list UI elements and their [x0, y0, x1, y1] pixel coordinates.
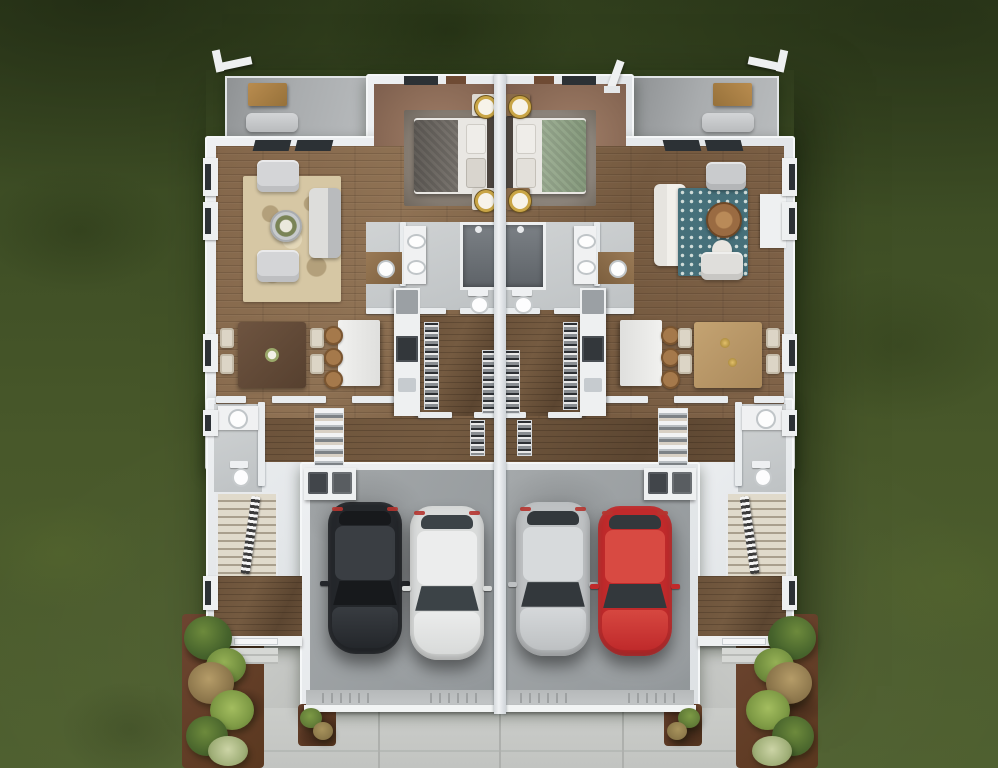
lamp [509, 190, 531, 212]
side-mirror [671, 584, 680, 589]
stove-cooktop [396, 336, 418, 362]
coffee-table-wood-round [706, 202, 742, 238]
round-sink [377, 260, 395, 278]
windshield [333, 581, 397, 605]
bedroom-right-window [562, 76, 596, 85]
wall [735, 402, 742, 486]
bar-stool [324, 348, 343, 367]
kitchen-island-left [338, 320, 380, 386]
apron-grooves [322, 693, 374, 703]
apron-grooves [520, 693, 572, 703]
window-glass [789, 415, 795, 431]
dining-chair [678, 354, 692, 374]
taillight [387, 507, 398, 511]
shower-head [475, 226, 482, 233]
toilet [754, 468, 772, 487]
window-east [782, 158, 797, 196]
dining-chair [220, 354, 234, 374]
washer [308, 472, 328, 494]
window-glass [789, 208, 795, 234]
car-silver [516, 502, 590, 656]
plant-pale [208, 736, 248, 766]
windshield [415, 586, 479, 611]
window-east [782, 576, 797, 610]
dryer [672, 472, 692, 494]
toilet [470, 296, 489, 314]
bar-stool [324, 326, 343, 345]
dining-chair [766, 328, 780, 348]
bedroom-left-window [404, 76, 438, 85]
living-right-window [663, 140, 702, 151]
bedroom-right-vent [534, 76, 554, 84]
clothes-rack [505, 350, 520, 414]
toilet-tank [512, 289, 532, 296]
rear-window [421, 515, 473, 529]
car-roof [335, 526, 394, 579]
wall [418, 412, 452, 418]
downspout-foot [604, 86, 620, 93]
armchair [257, 160, 299, 192]
bar-stool [661, 370, 680, 389]
wall [548, 412, 582, 418]
stove-cooktop [582, 336, 604, 362]
bed-right-blanket [542, 120, 586, 192]
round-sink [756, 409, 776, 429]
patio-table-right [713, 83, 752, 106]
wall [258, 402, 265, 486]
driveway-joint [246, 750, 754, 752]
round-sink [228, 409, 248, 429]
shower-head [517, 226, 524, 233]
driveway-joint [378, 706, 380, 768]
rear-window [609, 515, 661, 529]
window-west [203, 202, 218, 240]
taillight [520, 507, 531, 511]
rear-window [527, 511, 579, 525]
window-east [782, 202, 797, 240]
driveway-joint [499, 714, 501, 768]
living-left-window [295, 140, 334, 151]
kitchen-sink [584, 378, 602, 392]
apron-grooves [628, 693, 680, 703]
bathroom-sink [407, 234, 426, 249]
armchair [706, 162, 746, 190]
window-west [203, 576, 218, 610]
car-hood [332, 607, 399, 648]
lamp [509, 96, 531, 118]
bathroom-sink [577, 260, 596, 275]
car-roof [605, 530, 664, 583]
dining-chair [220, 328, 234, 348]
patio-bench-left [246, 113, 298, 132]
window-glass [205, 164, 211, 190]
dining-chair [766, 354, 780, 374]
window-east [782, 410, 797, 436]
garage-door-sill-right [504, 705, 696, 712]
wall [352, 396, 394, 403]
clothes-rack [563, 322, 578, 410]
front-door-left [234, 638, 278, 645]
dining-chair [310, 328, 324, 348]
window-west [203, 410, 218, 436]
patio-bench-right [702, 113, 754, 132]
windshield [521, 582, 585, 607]
side-mirror [402, 586, 411, 591]
dining-chair [678, 328, 692, 348]
taillight [657, 511, 668, 515]
washer [648, 472, 668, 494]
driveway-joint [622, 706, 624, 768]
shower-right [502, 222, 546, 290]
bed-right-pillow [516, 158, 536, 188]
rear-window [339, 511, 391, 525]
car-hood [602, 610, 669, 651]
side-mirror [508, 582, 517, 587]
duplex-floorplan-render [0, 0, 998, 768]
window-west [203, 158, 218, 196]
plant-pale [752, 736, 792, 766]
patio-right [632, 76, 779, 144]
window-east [782, 334, 797, 372]
bedroom-left-vent [446, 76, 466, 84]
wall [674, 396, 728, 403]
bed-right-headboard [506, 116, 513, 196]
toilet [232, 468, 250, 487]
car-roof [417, 531, 476, 585]
shoe-rack [470, 420, 485, 456]
car-white [410, 506, 484, 660]
dining-table-right [694, 322, 762, 388]
dining-chair [310, 354, 324, 374]
bed-left-headboard [487, 116, 494, 196]
car-black-suv [328, 502, 402, 654]
linen-closet [314, 408, 344, 466]
clothes-rack [424, 322, 439, 410]
toilet-tank [468, 289, 488, 296]
bed-right [506, 118, 586, 194]
bed-left-blanket [414, 120, 458, 192]
car-red [598, 506, 672, 656]
sofa-left-unit [309, 188, 341, 258]
window-west [203, 334, 218, 372]
bed-left [414, 118, 494, 194]
round-sink [609, 260, 627, 278]
dryer [332, 472, 352, 494]
window-glass [205, 208, 211, 234]
front-door-right [722, 638, 766, 645]
garage-door-sill-left [304, 705, 496, 712]
side-mirror [483, 586, 492, 591]
fridge [396, 290, 418, 314]
bed-left-pillow [466, 158, 486, 188]
wall [606, 396, 648, 403]
bed-left-pillow [466, 124, 486, 154]
linen-closet [658, 408, 688, 466]
window-glass [789, 164, 795, 190]
coffee-table-round [270, 210, 302, 242]
wall [754, 396, 784, 403]
window-glass [789, 340, 795, 366]
centerpiece-flowers [265, 348, 279, 362]
shrub-small-tan [313, 722, 333, 740]
window-glass [789, 581, 795, 605]
fridge [582, 290, 604, 314]
party-wall [494, 74, 506, 714]
toilet-tank [752, 461, 770, 468]
chaise-white [701, 252, 743, 280]
car-hood [520, 608, 587, 650]
wall [216, 396, 246, 403]
kitchen-sink [398, 378, 416, 392]
living-right-window [705, 140, 744, 151]
shoe-rack [517, 420, 532, 456]
bathroom-sink [577, 234, 596, 249]
kitchen-island-right [620, 320, 662, 386]
bed-right-pillow [516, 124, 536, 154]
windshield [603, 584, 667, 608]
living-left-window [253, 140, 292, 151]
taillight [469, 511, 480, 515]
window-glass [205, 415, 211, 431]
armchair [257, 250, 299, 282]
taillight [414, 511, 425, 515]
side-mirror [320, 581, 329, 586]
bar-stool [324, 370, 343, 389]
table-decor-gold [720, 338, 730, 348]
car-hood [414, 612, 481, 654]
window-glass [205, 581, 211, 605]
car-roof [523, 527, 582, 581]
wall [272, 396, 326, 403]
side-mirror [590, 584, 599, 589]
toilet [514, 296, 533, 314]
taillight [602, 511, 613, 515]
patio-table-left [248, 83, 287, 106]
taillight [332, 507, 343, 511]
table-decor-gold [728, 358, 737, 367]
bathroom-sink [407, 260, 426, 275]
taillight [575, 507, 586, 511]
apron-grooves [430, 693, 482, 703]
shrub-small-tan [667, 722, 687, 740]
window-glass [205, 340, 211, 366]
toilet-tank [230, 461, 248, 468]
